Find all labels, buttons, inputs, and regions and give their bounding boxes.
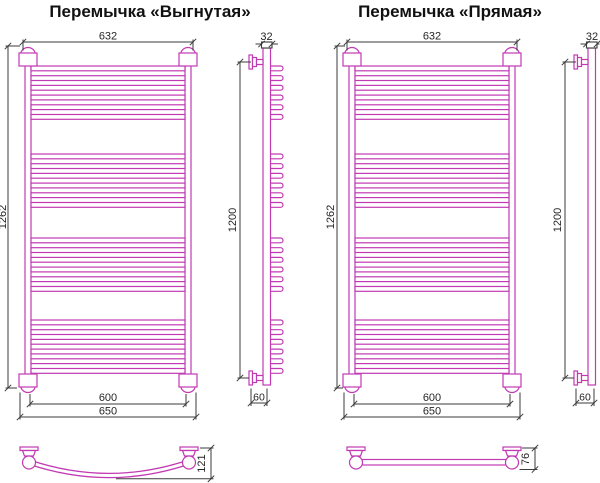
right-dim-inner-width: 600 xyxy=(423,392,441,404)
crossbar-ball-joint xyxy=(350,456,363,469)
left-drawing: Перемычка «Выгнутая» 632 1262 xyxy=(0,2,283,482)
crossbar-flange xyxy=(347,447,365,456)
right-dim-pipe-width: 32 xyxy=(586,31,598,43)
wall-mount xyxy=(179,48,197,67)
side-pipe xyxy=(263,48,271,385)
right-side-view xyxy=(574,42,597,385)
wall-mount xyxy=(503,374,521,393)
left-dim-wall-depth: 60 xyxy=(253,392,265,404)
left-rail-left xyxy=(25,58,31,382)
wall-mount xyxy=(19,48,37,67)
wall-mount xyxy=(19,374,37,393)
bar-group xyxy=(355,66,509,119)
left-crossbar-detail xyxy=(20,447,198,476)
right-dim-wall-depth: 60 xyxy=(579,392,591,404)
right-title: Перемычка «Прямая» xyxy=(358,2,542,21)
bar-group xyxy=(355,238,509,291)
left-dim-side-height: 1200 xyxy=(227,208,239,232)
bar-group xyxy=(31,320,185,373)
wall-mount xyxy=(179,374,197,393)
left-dim-height: 1262 xyxy=(0,205,9,229)
bar-group xyxy=(31,154,185,207)
wall-mount xyxy=(503,48,521,67)
bar-group xyxy=(31,66,185,119)
side-bracket xyxy=(249,371,263,385)
right-dim-crossbar-depth: 76 xyxy=(520,453,532,465)
side-bracket xyxy=(574,371,588,385)
crossbar-ball-joint xyxy=(506,456,519,469)
right-dim-top-width: 632 xyxy=(423,31,441,43)
left-dim-inner-width: 600 xyxy=(99,392,117,404)
left-dim-crossbar-depth: 121 xyxy=(196,454,208,472)
left-dim-pipe-width: 32 xyxy=(260,31,272,43)
wall-mount xyxy=(343,48,361,67)
bar-group xyxy=(31,238,185,291)
left-dim-outer-width: 650 xyxy=(99,406,117,418)
wall-mount xyxy=(343,374,361,393)
right-rail-right xyxy=(509,58,515,382)
right-front-view xyxy=(343,48,521,393)
right-drawing: Перемычка «Прямая» 632 1262 60 xyxy=(325,2,600,473)
straight-crossbar-tube xyxy=(356,460,512,466)
crossbar-flange xyxy=(20,447,38,456)
crossbar-ball-joint xyxy=(183,456,196,469)
right-dim-side-height: 1200 xyxy=(552,208,564,232)
left-side-view xyxy=(249,42,283,385)
right-rail-left xyxy=(349,58,355,382)
right-dim-outer-width: 650 xyxy=(423,406,441,418)
crossbar-ball-joint xyxy=(23,456,36,469)
side-bracket xyxy=(574,55,588,69)
left-front-view xyxy=(19,48,197,393)
left-title: Перемычка «Выгнутая» xyxy=(49,2,250,21)
right-crossbar-detail xyxy=(347,447,521,469)
bar-group xyxy=(355,320,509,373)
side-bracket xyxy=(249,55,263,69)
right-dim-height: 1262 xyxy=(325,205,337,229)
side-pipe xyxy=(588,48,596,385)
technical-drawing: Перемычка «Выгнутая» 632 1262 xyxy=(0,0,600,483)
drawing-sheet: Перемычка «Выгнутая» 632 1262 xyxy=(0,0,600,483)
bar-group xyxy=(355,154,509,207)
left-dim-top-width: 632 xyxy=(99,31,117,43)
left-rail-right xyxy=(185,58,191,382)
crossbar-flange xyxy=(503,447,521,456)
